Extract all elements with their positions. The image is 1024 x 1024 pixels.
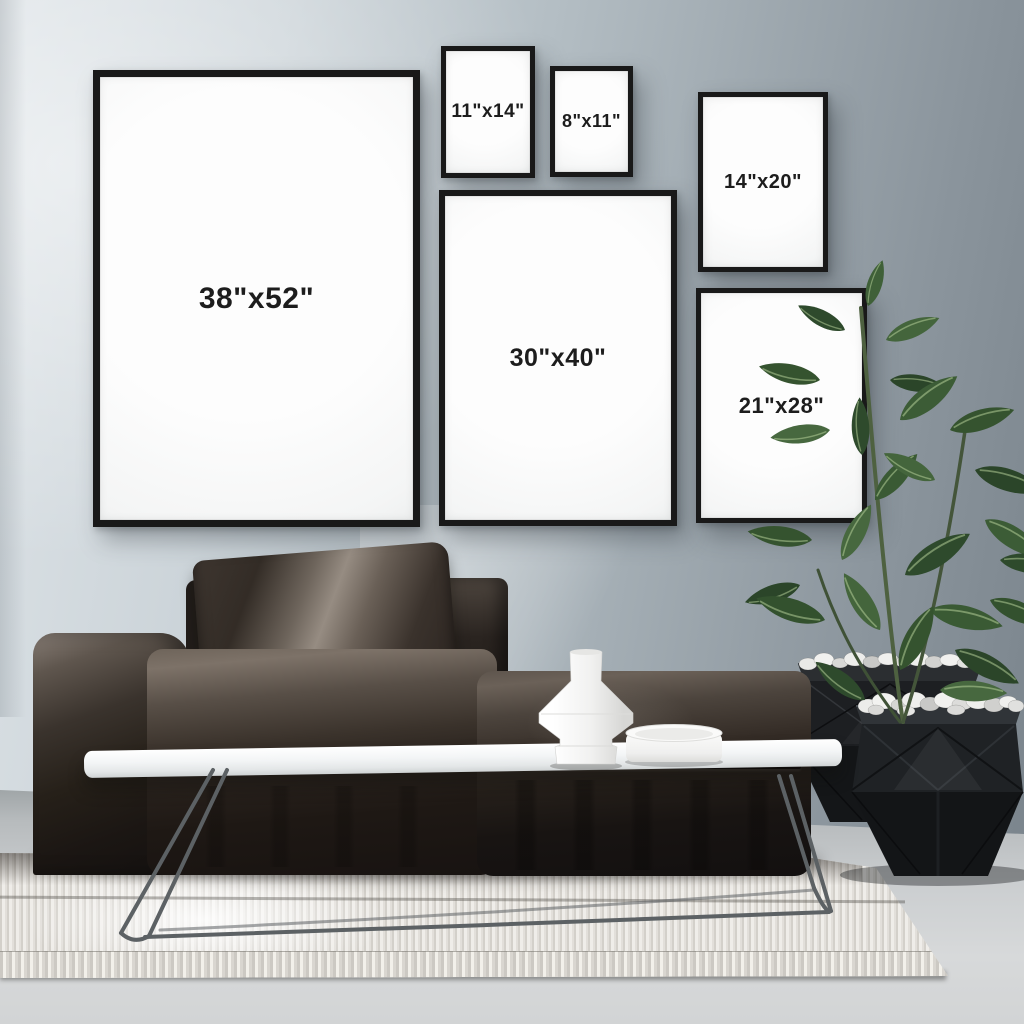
size-label-11x14: 11"x14" bbox=[451, 101, 524, 123]
size-label-14x20: 14"x20" bbox=[724, 171, 802, 194]
frame-canvas: 21"x28" bbox=[701, 293, 862, 518]
frame-8x11: 8"x11" bbox=[550, 66, 633, 177]
frame-canvas: 11"x14" bbox=[446, 51, 530, 173]
size-label-21x28: 21"x28" bbox=[739, 393, 825, 419]
room-mockup: 38"x52" 11"x14" 8"x11" 14"x20" 30"x40" 2… bbox=[0, 0, 1024, 1024]
size-label-38x52: 38"x52" bbox=[199, 282, 314, 316]
size-label-30x40: 30"x40" bbox=[510, 344, 607, 373]
frame-canvas: 8"x11" bbox=[555, 71, 628, 172]
frame-canvas: 38"x52" bbox=[100, 77, 413, 520]
frame-14x20: 14"x20" bbox=[698, 92, 828, 272]
frame-38x52: 38"x52" bbox=[93, 70, 420, 527]
frame-30x40: 30"x40" bbox=[439, 190, 677, 526]
frame-21x28: 21"x28" bbox=[696, 288, 867, 523]
frame-canvas: 14"x20" bbox=[703, 97, 823, 267]
frame-canvas: 30"x40" bbox=[445, 196, 671, 520]
size-label-8x11: 8"x11" bbox=[562, 111, 621, 132]
sofa-ottoman-cushion bbox=[477, 671, 811, 876]
frame-11x14: 11"x14" bbox=[441, 46, 535, 178]
